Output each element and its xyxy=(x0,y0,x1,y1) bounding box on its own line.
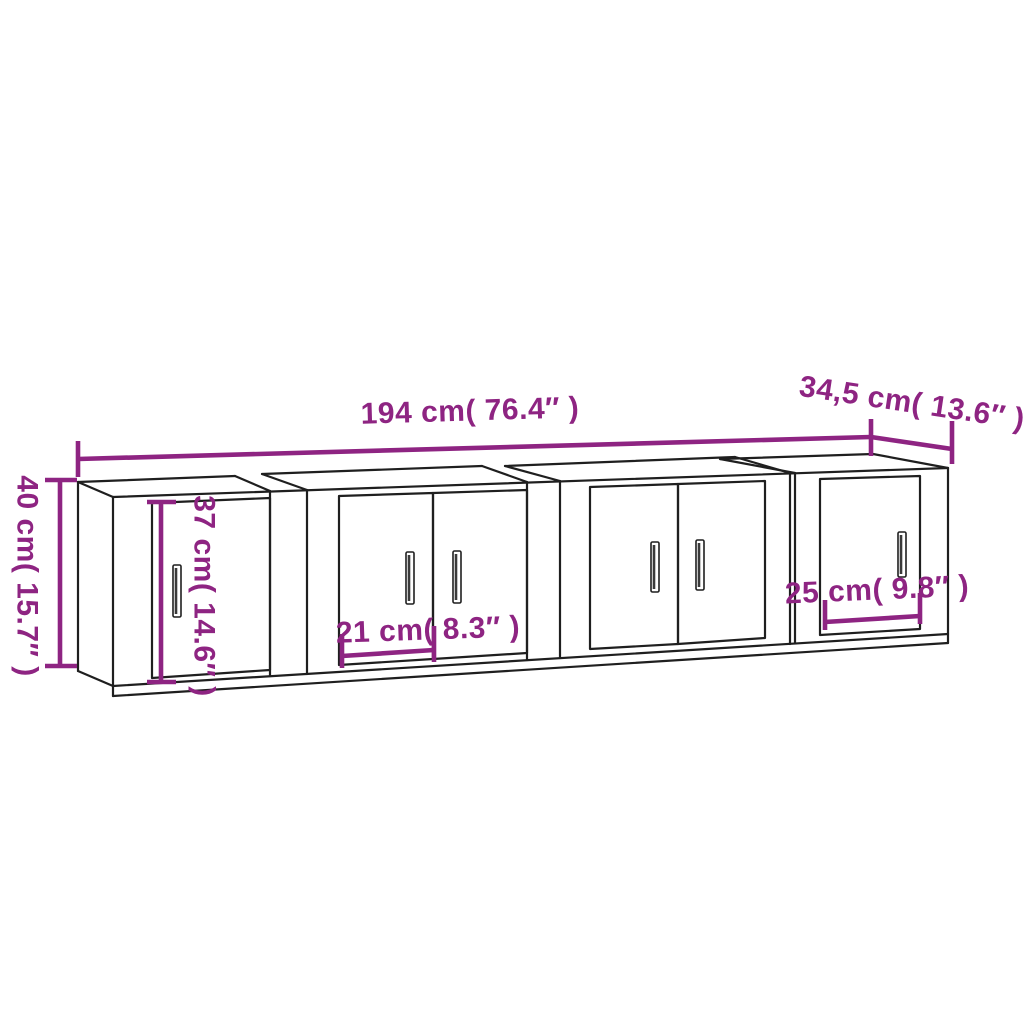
dimension-side-door-width: 25 cm( 9.8″ ) xyxy=(784,569,970,630)
label-door-width: 21 cm( 8.3″ ) xyxy=(335,610,520,649)
label-total-width: 194 cm( 76.4″ ) xyxy=(360,391,580,430)
dimension-depth: 34,5 cm( 13.6″ ) xyxy=(797,370,1024,464)
cabinet3-handle-right xyxy=(696,540,704,590)
label-door-height: 37 cm( 14.6″ ) xyxy=(188,495,221,696)
product-dimension-image: 194 cm( 76.4″ ) 34,5 cm( 13.6″ ) 40 cm( … xyxy=(0,0,1024,1024)
cabinet3-door-right xyxy=(678,481,765,644)
bottom-base-band xyxy=(113,634,948,696)
cabinet1-left-side-face xyxy=(78,482,113,686)
cabinet4-handle xyxy=(898,532,906,577)
label-side-door-width: 25 cm( 9.8″ ) xyxy=(784,569,970,610)
label-depth: 34,5 cm( 13.6″ ) xyxy=(797,370,1024,436)
cabinet3-door-left xyxy=(590,484,678,649)
label-height: 40 cm( 15.7″ ) xyxy=(11,475,44,676)
cabinet2-handle-left xyxy=(406,552,414,604)
cabinet3-handle-left xyxy=(651,542,659,592)
dimension-height: 40 cm( 15.7″ ) xyxy=(11,475,78,676)
cabinet2-handle-right xyxy=(453,551,461,603)
dimension-door-height: 37 cm( 14.6″ ) xyxy=(147,495,221,696)
cabinet1-handle xyxy=(173,565,181,617)
dimension-diagram-svg: 194 cm( 76.4″ ) 34,5 cm( 13.6″ ) 40 cm( … xyxy=(0,0,1024,1024)
